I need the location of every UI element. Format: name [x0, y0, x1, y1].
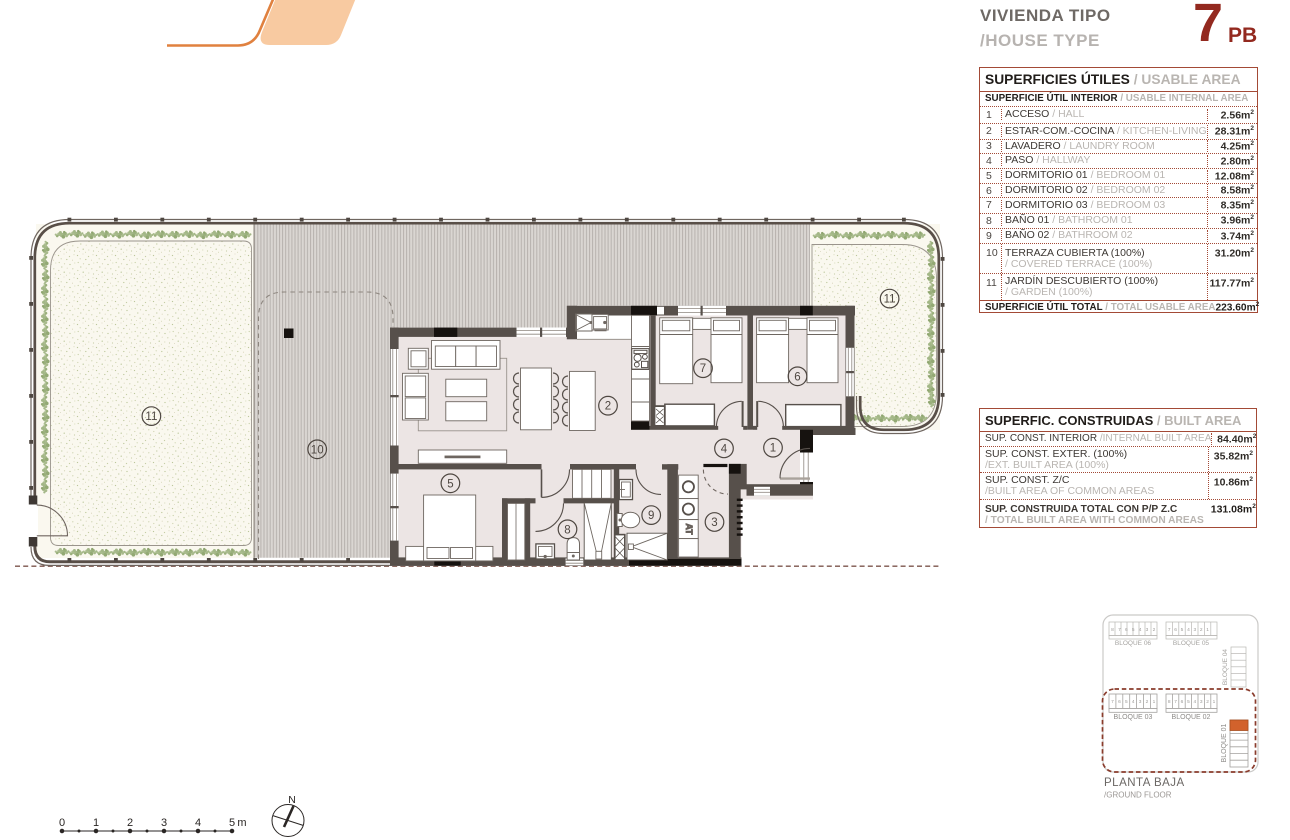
svg-text:AT: AT: [684, 523, 694, 535]
svg-text:/GROUND FLOOR: /GROUND FLOOR: [1104, 791, 1172, 800]
svg-text:N: N: [288, 794, 296, 806]
svg-text:2: 2: [1153, 627, 1156, 633]
svg-text:7: 7: [1111, 699, 1114, 705]
svg-text:4: 4: [1139, 627, 1142, 633]
svg-text:7: 7: [1174, 699, 1177, 705]
svg-text:6: 6: [1174, 627, 1177, 633]
svg-text:7: 7: [1118, 627, 1121, 633]
svg-text:4: 4: [195, 817, 201, 829]
svg-text:3: 3: [1200, 699, 1203, 705]
svg-text:5: 5: [1181, 627, 1184, 633]
svg-text:7: 7: [700, 363, 706, 375]
svg-text:9: 9: [648, 510, 654, 522]
svg-text:1: 1: [770, 443, 776, 455]
svg-text:5: 5: [229, 817, 235, 829]
svg-text:8: 8: [564, 524, 570, 536]
svg-text:3: 3: [1193, 627, 1196, 633]
svg-text:1: 1: [1153, 699, 1156, 705]
svg-text:3: 3: [711, 517, 717, 529]
svg-text:1: 1: [93, 817, 99, 829]
svg-text:4: 4: [1193, 699, 1196, 705]
svg-text:6: 6: [1181, 699, 1184, 705]
svg-text:1: 1: [1213, 699, 1216, 705]
svg-text:4: 4: [1187, 627, 1190, 633]
svg-text:2: 2: [1146, 699, 1149, 705]
svg-text:4: 4: [721, 443, 728, 455]
svg-text:6: 6: [794, 371, 800, 383]
svg-text:6: 6: [1125, 627, 1128, 633]
svg-text:5: 5: [1132, 627, 1135, 633]
svg-text:BLOQUE 06: BLOQUE 06: [1115, 640, 1152, 647]
svg-text:PLANTA BAJA: PLANTA BAJA: [1104, 777, 1185, 789]
svg-text:2: 2: [1200, 627, 1203, 633]
svg-text:11: 11: [145, 411, 157, 423]
svg-text:3: 3: [1146, 627, 1149, 633]
svg-text:1: 1: [1206, 627, 1209, 633]
svg-text:7: 7: [1168, 627, 1171, 633]
svg-text:8: 8: [1111, 627, 1114, 633]
svg-text:11: 11: [884, 294, 896, 306]
svg-text:10: 10: [311, 444, 324, 456]
svg-text:5: 5: [1187, 699, 1190, 705]
svg-text:BLOQUE 05: BLOQUE 05: [1173, 640, 1210, 647]
svg-text:BLOQUE 03: BLOQUE 03: [1114, 714, 1153, 721]
svg-text:8: 8: [1168, 699, 1171, 705]
svg-text:2: 2: [127, 817, 133, 829]
svg-text:m: m: [237, 817, 246, 829]
svg-text:BLOQUE 04: BLOQUE 04: [1222, 649, 1229, 686]
svg-text:2: 2: [605, 401, 611, 413]
svg-text:3: 3: [161, 817, 167, 829]
svg-text:5: 5: [1125, 699, 1128, 705]
svg-text:3: 3: [1139, 699, 1142, 705]
svg-text:BLOQUE 02: BLOQUE 02: [1172, 714, 1211, 721]
svg-text:4: 4: [1132, 699, 1135, 705]
svg-text:6: 6: [1118, 699, 1121, 705]
svg-text:5: 5: [447, 478, 453, 490]
svg-text:BLOQUE 01: BLOQUE 01: [1221, 723, 1228, 762]
svg-text:0: 0: [59, 817, 65, 829]
svg-text:2: 2: [1206, 699, 1209, 705]
